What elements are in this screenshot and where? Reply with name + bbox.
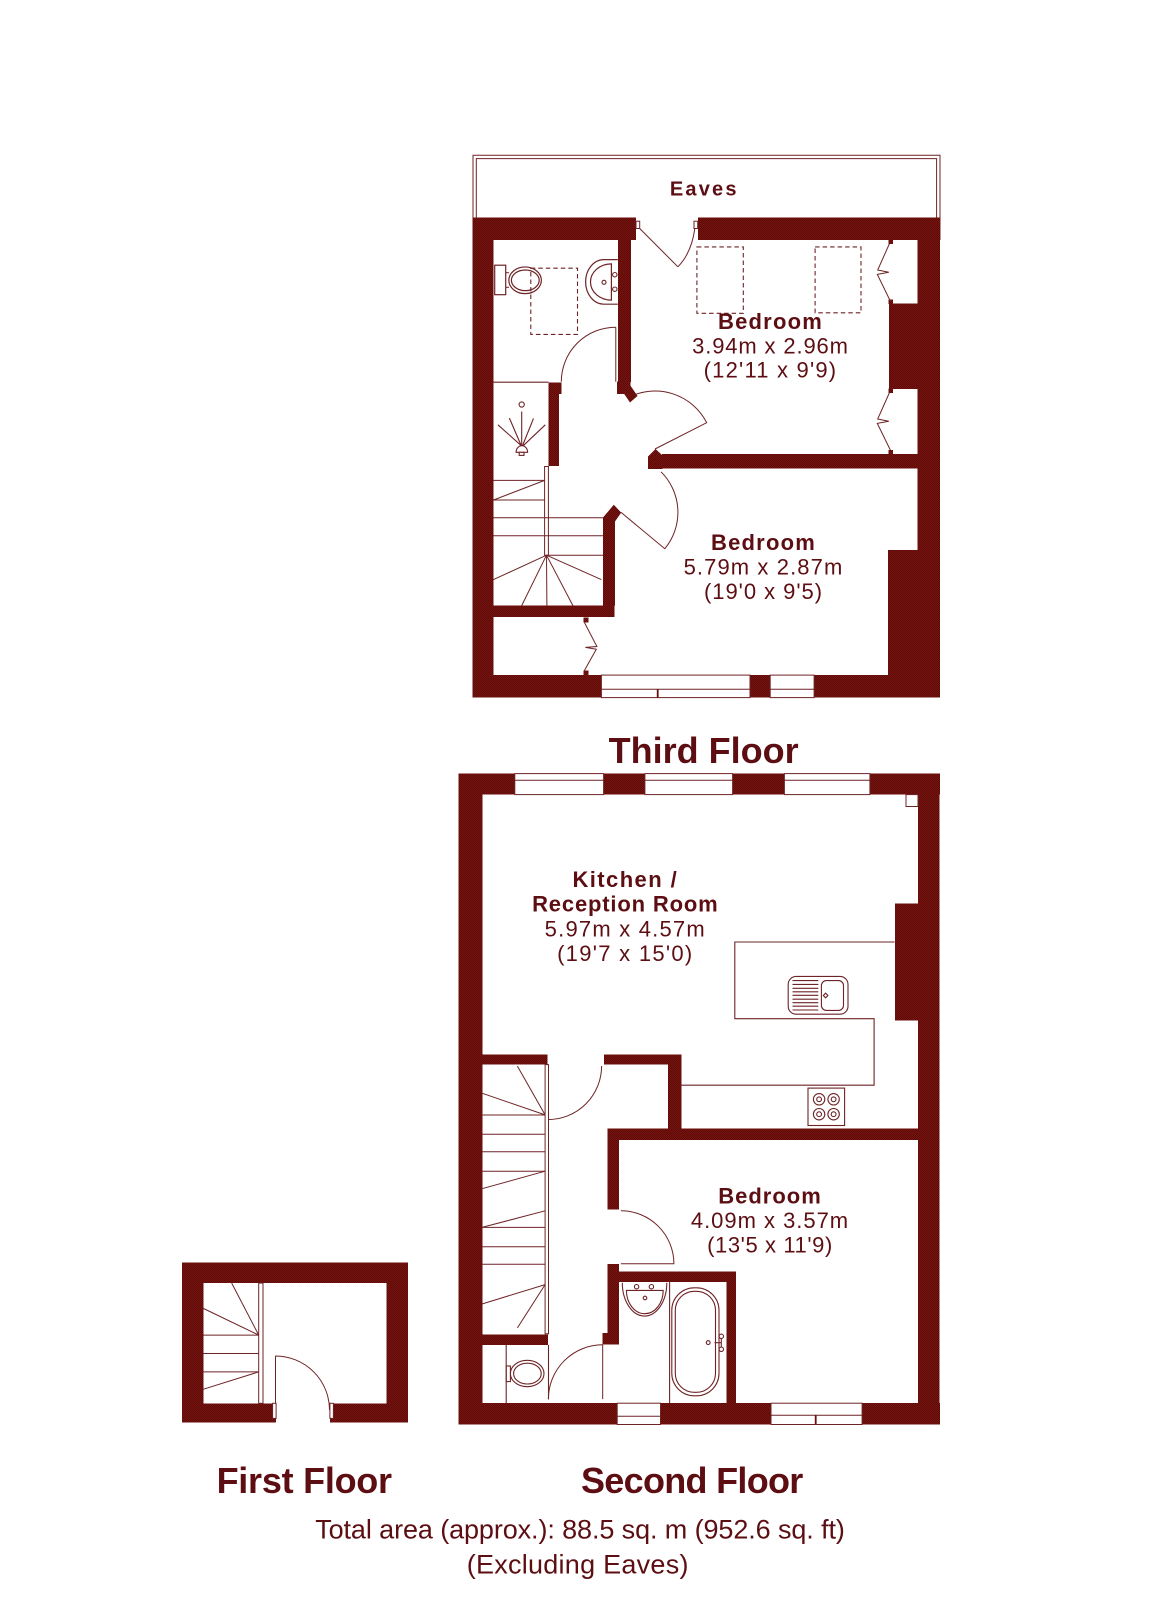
svg-text:Bedroom: Bedroom [711, 530, 816, 555]
svg-text:First Floor: First Floor [217, 1460, 392, 1501]
svg-text:(13'5 x 11'9): (13'5 x 11'9) [707, 1233, 833, 1258]
svg-text:5.97m x 4.57m: 5.97m x 4.57m [545, 916, 706, 941]
svg-text:Total area (approx.): 88.5 sq.: Total area (approx.): 88.5 sq. m (952.6 … [315, 1515, 845, 1545]
svg-text:(19'0 x 9'5): (19'0 x 9'5) [704, 579, 823, 604]
svg-text:Eaves: Eaves [670, 178, 739, 200]
svg-text:(12'11 x 9'9): (12'11 x 9'9) [704, 358, 838, 383]
svg-text:Bedroom: Bedroom [718, 309, 823, 334]
svg-text:Third Floor: Third Floor [609, 730, 799, 771]
svg-text:Kitchen /: Kitchen / [572, 867, 678, 892]
svg-text:(19'7 x 15'0): (19'7 x 15'0) [557, 941, 693, 966]
svg-text:Bedroom: Bedroom [718, 1183, 822, 1208]
svg-text:Second Floor: Second Floor [581, 1460, 803, 1501]
svg-text:Reception Room: Reception Room [532, 892, 718, 917]
svg-text:3.94m x 2.96m: 3.94m x 2.96m [692, 333, 849, 358]
svg-text:5.79m x 2.87m: 5.79m x 2.87m [684, 555, 844, 580]
svg-text:(Excluding Eaves): (Excluding Eaves) [467, 1550, 689, 1580]
svg-text:4.09m x 3.57m: 4.09m x 3.57m [691, 1208, 849, 1233]
